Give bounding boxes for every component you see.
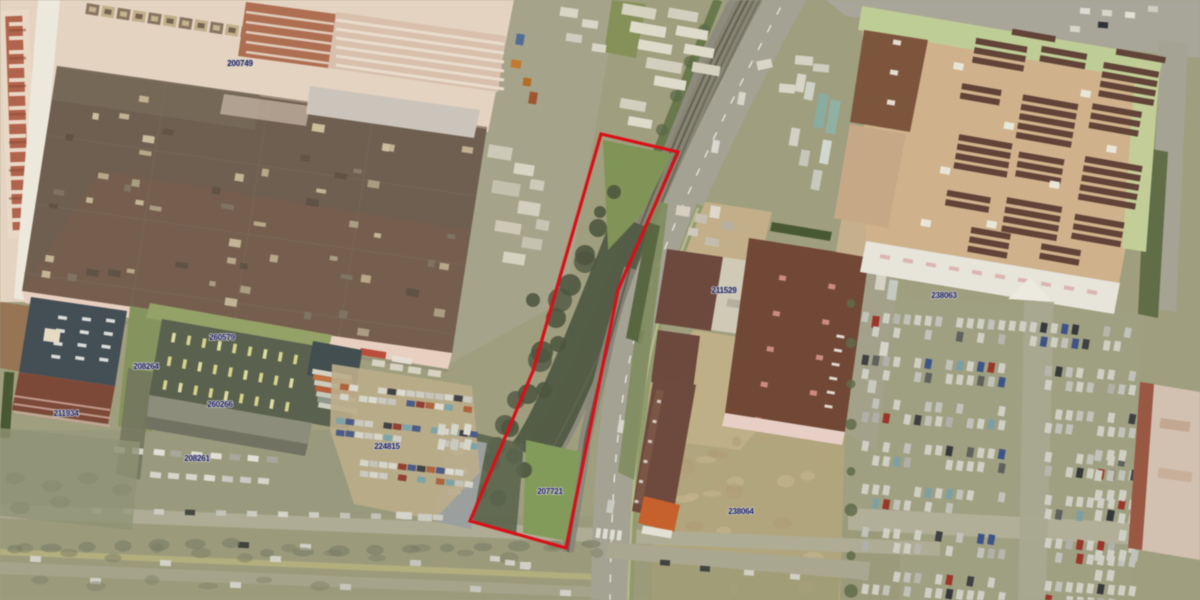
svg-text:200749: 200749 — [227, 59, 253, 68]
svg-text:207721: 207721 — [537, 487, 563, 496]
svg-text:208261: 208261 — [184, 454, 210, 463]
svg-text:238063: 238063 — [931, 291, 957, 300]
svg-text:260579: 260579 — [209, 333, 235, 342]
svg-text:211529: 211529 — [711, 286, 737, 295]
svg-text:224815: 224815 — [374, 442, 400, 451]
svg-text:260266: 260266 — [207, 400, 233, 409]
svg-text:211934: 211934 — [53, 409, 79, 418]
svg-text:208264: 208264 — [133, 362, 159, 371]
svg-text:238064: 238064 — [728, 507, 754, 516]
